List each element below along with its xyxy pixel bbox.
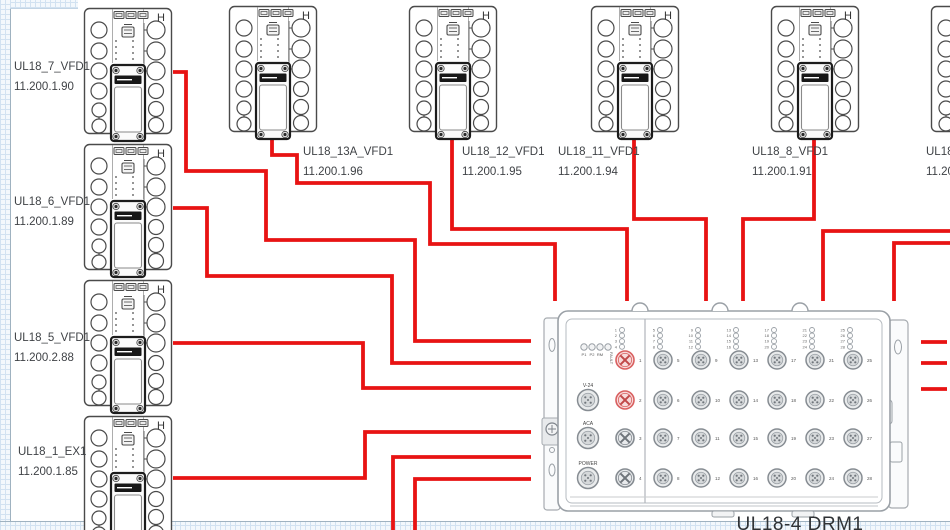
diagram-canvas: P1P2RMFAULTV-24 ACA POWER 1234 1 2 3 456… (0, 0, 950, 530)
drm-port-m12[interactable] (806, 391, 824, 409)
drm-led-number: 21 (803, 328, 808, 333)
drm-port-m12[interactable] (806, 351, 824, 369)
device-ip: 11.200.1.85 (18, 462, 86, 482)
drm-port-number: 25 (867, 358, 873, 363)
drm-port-m12[interactable] (654, 469, 672, 487)
drm-led-number: 27 (841, 339, 846, 344)
drm-port-led (658, 328, 663, 333)
drm-port-number: 27 (867, 436, 873, 441)
drm-port-led (620, 328, 625, 333)
module-icon (809, 25, 821, 35)
top-connector-icon (126, 420, 136, 427)
drm-port-m12[interactable] (844, 351, 862, 369)
top-connector-icon (138, 12, 148, 19)
drm-port-m12[interactable] (768, 391, 786, 409)
drm-port-number: 20 (791, 476, 797, 481)
drm-status-led (589, 344, 595, 350)
drm-port-m12[interactable] (730, 351, 748, 369)
wire-connection[interactable] (415, 479, 531, 530)
device-label-ul18-11-vfd1: UL18_11_VFD1 11.200.1.94 (558, 142, 640, 182)
device-ul18-6-vfd1[interactable]: H (83, 143, 173, 285)
top-connector-icon (126, 148, 136, 155)
drm-port-number: 16 (753, 476, 759, 481)
drm-port-led (848, 339, 853, 344)
drm-port-led (620, 344, 625, 349)
device-ip: 11.200.2.88 (14, 348, 90, 368)
drm-port-number: 21 (829, 358, 835, 363)
drm-port-number: 10 (715, 398, 721, 403)
drm-status-led-label: P2 (590, 352, 596, 357)
device-ip: 11.200.1.90 (14, 77, 90, 97)
drm-port-led (658, 333, 663, 338)
drm-led-number: 10 (689, 333, 694, 338)
device-label-ul18-13a-vfd1: UL18_13A_VFD1 11.200.1.96 (303, 142, 393, 182)
drm-status-led-label: P1 (582, 352, 588, 357)
h-marker-glyph: H (157, 12, 165, 24)
drm-port-led (696, 344, 701, 349)
drm-port-m12[interactable] (806, 469, 824, 487)
drm-device-label: UL18-4 DRM1 (700, 514, 900, 530)
drm-port-led (772, 333, 777, 338)
drm-port-m12[interactable] (844, 469, 862, 487)
top-connector-icon (633, 10, 643, 17)
top-connector-icon (138, 420, 148, 427)
drm-led-number: 19 (765, 339, 770, 344)
device-ip: 11.20 (926, 162, 950, 182)
top-connector-icon (813, 10, 823, 17)
drm-port-m12[interactable] (578, 468, 599, 489)
drm-port-led (810, 339, 815, 344)
module-icon (447, 25, 459, 35)
drm-right-bracket (888, 320, 908, 508)
device-label-ul18-7-vfd1: UL18_7_VFD1 11.200.1.90 (14, 57, 90, 97)
drm-port-m12[interactable] (692, 469, 710, 487)
drm-port-x[interactable] (616, 351, 634, 369)
drm-port-m12[interactable] (768, 351, 786, 369)
top-connector-icon (621, 10, 631, 17)
drm-port-m12[interactable] (768, 429, 786, 447)
drm-port-m12[interactable] (654, 351, 672, 369)
h-marker-glyph: H (664, 10, 672, 22)
h-marker-glyph: H (157, 284, 165, 296)
drm-status-led (581, 344, 587, 350)
drm-fault-led (605, 344, 611, 350)
h-marker-glyph: H (157, 148, 165, 160)
drm-aux-label: POWER (579, 461, 598, 467)
drm-port-number: 18 (791, 398, 797, 403)
device-ul18-1-ex1[interactable]: H (83, 415, 173, 530)
wire-connection[interactable] (173, 343, 531, 388)
device-name: UL18_1_EX1 (18, 442, 86, 462)
device-ul18-8-vfd1[interactable]: H (770, 5, 860, 147)
drm-aux-label: V-24 (583, 383, 594, 389)
top-connector-icon (138, 284, 148, 291)
drm-port-m12[interactable] (806, 429, 824, 447)
drm-port-m12[interactable] (730, 391, 748, 409)
drm-port-led (734, 333, 739, 338)
drm-port-led (696, 328, 701, 333)
drm-port-led (772, 328, 777, 333)
drm-port-number: 19 (791, 436, 797, 441)
device-ip: 11.200.1.89 (14, 212, 90, 232)
device-ul18-7-vfd1[interactable]: H (83, 7, 173, 149)
drm-led-number: 14 (727, 333, 732, 338)
device-label-ul18-5-vfd1: UL18_5_VFD1 11.200.2.88 (14, 328, 90, 368)
drm-port-led (620, 333, 625, 338)
drm-led-number: 28 (841, 344, 846, 349)
drm-led-number: 22 (803, 333, 808, 338)
wire-connection[interactable] (634, 137, 706, 301)
top-connector-icon (451, 10, 461, 17)
drm-port-led (848, 328, 853, 333)
top-connector-icon (114, 420, 124, 427)
top-connector-icon (114, 284, 124, 291)
drm-port-number: 24 (829, 476, 835, 481)
top-connector-icon (825, 10, 835, 17)
device-ul18-12-vfd1[interactable]: H (408, 5, 498, 147)
drm-port-m12[interactable] (844, 429, 862, 447)
drm-port-led (734, 339, 739, 344)
h-marker-glyph: H (482, 10, 490, 22)
device-ip: 11.200.1.96 (303, 162, 393, 182)
drm-port-led (848, 344, 853, 349)
drm-port-number: 14 (753, 398, 759, 403)
drm-port-led (772, 344, 777, 349)
drm-aux-label: ACA (583, 421, 594, 427)
device-ul18-11-vfd1[interactable]: H (590, 5, 680, 147)
device-ip: 11.200.1.95 (462, 162, 544, 182)
drm-port-m12[interactable] (692, 351, 710, 369)
wire-connection[interactable] (894, 243, 950, 301)
device-name: UL18_13A_VFD1 (303, 142, 393, 162)
drm-led-number: 25 (841, 328, 846, 333)
top-connector-icon (801, 10, 811, 17)
h-marker-glyph: H (844, 10, 852, 22)
drm-led-number: 20 (765, 344, 770, 349)
device-ip: 11.200.1.91 (752, 162, 828, 182)
device-name: UL18_11_VFD1 (558, 142, 640, 162)
drm-port-led (810, 344, 815, 349)
device-label-ul18-1-ex1: UL18_1_EX1 11.200.1.85 (18, 442, 86, 482)
device-ip: 11.200.1.94 (558, 162, 640, 182)
drm-port-m12[interactable] (730, 429, 748, 447)
drm-port-number: 26 (867, 398, 873, 403)
top-connector-icon (126, 12, 136, 19)
device-ul18-13a-vfd1[interactable]: H (228, 5, 318, 147)
drm-port-number: 22 (829, 398, 835, 403)
drm-led-number: 26 (841, 333, 846, 338)
device-ul18-partial[interactable]: H (930, 5, 950, 147)
drm-port-led (696, 333, 701, 338)
device-drm[interactable]: P1P2RMFAULTV-24 ACA POWER 1234 1 2 3 456… (542, 303, 908, 517)
drm-port-led (658, 344, 663, 349)
device-ul18-5-vfd1[interactable]: H (83, 279, 173, 421)
module-icon (122, 27, 134, 37)
drm-port-m12[interactable] (578, 428, 599, 449)
top-connector-icon (114, 148, 124, 155)
device-label-ul18-12-vfd1: UL18_12_VFD1 11.200.1.95 (462, 142, 544, 182)
h-marker-glyph: H (157, 420, 165, 432)
drm-led-number: 18 (765, 333, 770, 338)
drm-port-m12[interactable] (654, 429, 672, 447)
drm-port-x[interactable] (616, 429, 634, 447)
drm-port-led (848, 333, 853, 338)
top-connector-icon (645, 10, 655, 17)
drm-status-led (597, 344, 603, 350)
top-connector-icon (439, 10, 449, 17)
drm-port-led (772, 339, 777, 344)
drm-port-led (696, 339, 701, 344)
device-label-ul18-8-vfd1: UL18_8_VFD1 11.200.1.91 (752, 142, 828, 182)
drm-led-number: 24 (803, 344, 808, 349)
top-connector-icon (271, 10, 281, 17)
drm-status-led-label: RM (597, 352, 603, 357)
device-name: UL18_8_VFD1 (752, 142, 828, 162)
drm-port-led (620, 339, 625, 344)
module-icon (122, 299, 134, 309)
drm-port-number: 28 (867, 476, 873, 481)
top-connector-icon (114, 12, 124, 19)
drm-port-m12[interactable] (844, 391, 862, 409)
drm-port-x[interactable] (616, 469, 634, 487)
top-connector-icon (138, 148, 148, 155)
drm-led-number: 13 (727, 328, 732, 333)
drm-port-m12[interactable] (730, 469, 748, 487)
drm-port-m12[interactable] (578, 390, 599, 411)
wire-connection[interactable] (173, 432, 531, 478)
drm-port-number: 13 (753, 358, 759, 363)
top-connector-icon (463, 10, 473, 17)
drm-led-number: 23 (803, 339, 808, 344)
device-name: UL18_7_VFD1 (14, 57, 90, 77)
drm-port-led (658, 339, 663, 344)
device-name: UL18 (926, 142, 950, 162)
drm-led-number: 12 (689, 344, 694, 349)
module-icon (267, 25, 279, 35)
drm-port-x[interactable] (616, 391, 634, 409)
drm-port-number: 23 (829, 436, 835, 441)
drm-port-m12[interactable] (654, 391, 672, 409)
drm-port-number: 15 (753, 436, 759, 441)
device-name: UL18_6_VFD1 (14, 192, 90, 212)
drm-port-number: 11 (715, 436, 720, 441)
drm-port-number: 12 (715, 476, 721, 481)
drm-port-led (810, 328, 815, 333)
top-connector-icon (259, 10, 269, 17)
device-label-ul18-partial: UL18 11.20 (926, 142, 950, 182)
top-connector-icon (283, 10, 293, 17)
device-name: UL18_5_VFD1 (14, 328, 90, 348)
device-name: UL18_12_VFD1 (462, 142, 544, 162)
drm-port-number: 17 (791, 358, 797, 363)
module-icon (122, 435, 134, 445)
module-icon (122, 163, 134, 173)
drm-port-led (810, 333, 815, 338)
drm-led-number: 16 (727, 344, 732, 349)
drm-port-m12[interactable] (768, 469, 786, 487)
device-label-ul18-6-vfd1: UL18_6_VFD1 11.200.1.89 (14, 192, 90, 232)
drm-fault-label: FAULT (609, 352, 614, 365)
drm-port-m12[interactable] (692, 391, 710, 409)
drm-port-m12[interactable] (692, 429, 710, 447)
top-connector-icon (126, 284, 136, 291)
drm-led-number: 17 (765, 328, 770, 333)
drm-led-number: 15 (727, 339, 732, 344)
h-marker-glyph: H (302, 10, 310, 22)
drm-port-led (734, 344, 739, 349)
drm-port-led (734, 328, 739, 333)
module-icon (629, 25, 641, 35)
